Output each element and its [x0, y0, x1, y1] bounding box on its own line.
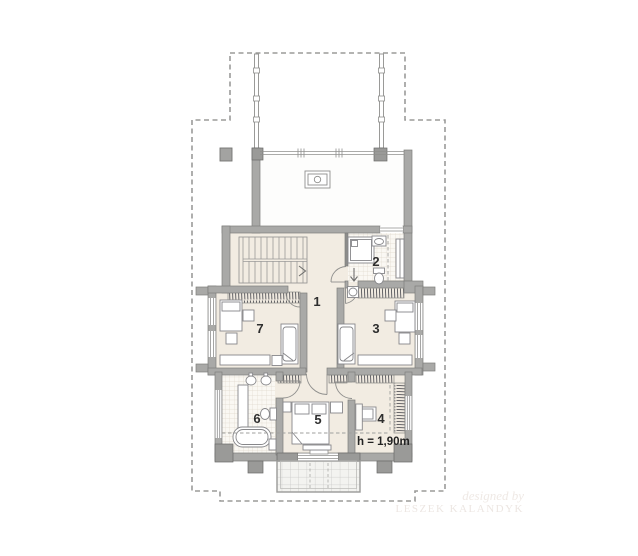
desk	[220, 355, 270, 365]
boiler	[348, 287, 359, 298]
room-label-3: 3	[372, 321, 379, 336]
window-room4	[406, 396, 412, 430]
room-label-5: 5	[314, 412, 321, 427]
room-label-1: 1	[313, 294, 320, 309]
shower	[348, 237, 374, 263]
nightstand	[243, 310, 254, 321]
window-room6	[216, 390, 222, 438]
roof-post-right	[379, 54, 385, 148]
room-label-2: 2	[372, 254, 379, 269]
bed-double	[220, 300, 242, 331]
bathtub	[233, 427, 271, 447]
nightstand	[399, 333, 410, 344]
tv-stand	[303, 445, 331, 450]
floor-plan-page: 1 2 3 4 5 6 7 h = 1,90m designed by LESZ…	[0, 0, 638, 556]
window-room3-2	[416, 335, 423, 358]
wardrobe-room3	[358, 287, 404, 298]
pier	[377, 461, 392, 473]
window-room3-1	[416, 303, 423, 330]
pier	[248, 461, 263, 473]
sink	[372, 236, 386, 246]
bed-single	[338, 324, 355, 364]
toilet	[261, 408, 277, 420]
roof-post-left	[254, 54, 260, 148]
room-label-4: 4	[377, 411, 385, 426]
cabinet	[396, 239, 404, 278]
pier	[215, 444, 233, 462]
desk	[358, 355, 412, 365]
window-room2-top	[380, 227, 403, 233]
skylight	[305, 171, 330, 188]
floor-plan-drawing: 1 2 3 4 5 6 7 h = 1,90m	[0, 0, 638, 556]
balcony	[277, 461, 360, 492]
nightstand	[331, 402, 343, 413]
bed-double	[292, 402, 329, 444]
counter	[238, 385, 248, 429]
nightstand	[385, 310, 396, 321]
window-room7-1	[209, 298, 216, 325]
bed-double	[395, 301, 415, 332]
window-room7-2	[209, 331, 216, 357]
room-label-6: 6	[253, 411, 260, 426]
room-label-7: 7	[256, 321, 263, 336]
shelf	[356, 404, 363, 430]
height-note: h = 1,90m	[357, 436, 410, 448]
nightstand	[283, 402, 291, 412]
chimney	[220, 148, 232, 161]
pier	[252, 148, 263, 160]
wardrobe-room4-top	[356, 375, 394, 383]
bed-single	[281, 324, 298, 364]
toilet	[374, 268, 385, 284]
chair	[272, 356, 282, 366]
wardrobe-room4-side	[394, 383, 405, 433]
nightstand	[226, 333, 237, 344]
cabinet	[269, 439, 276, 450]
top-room-floor	[260, 155, 404, 226]
